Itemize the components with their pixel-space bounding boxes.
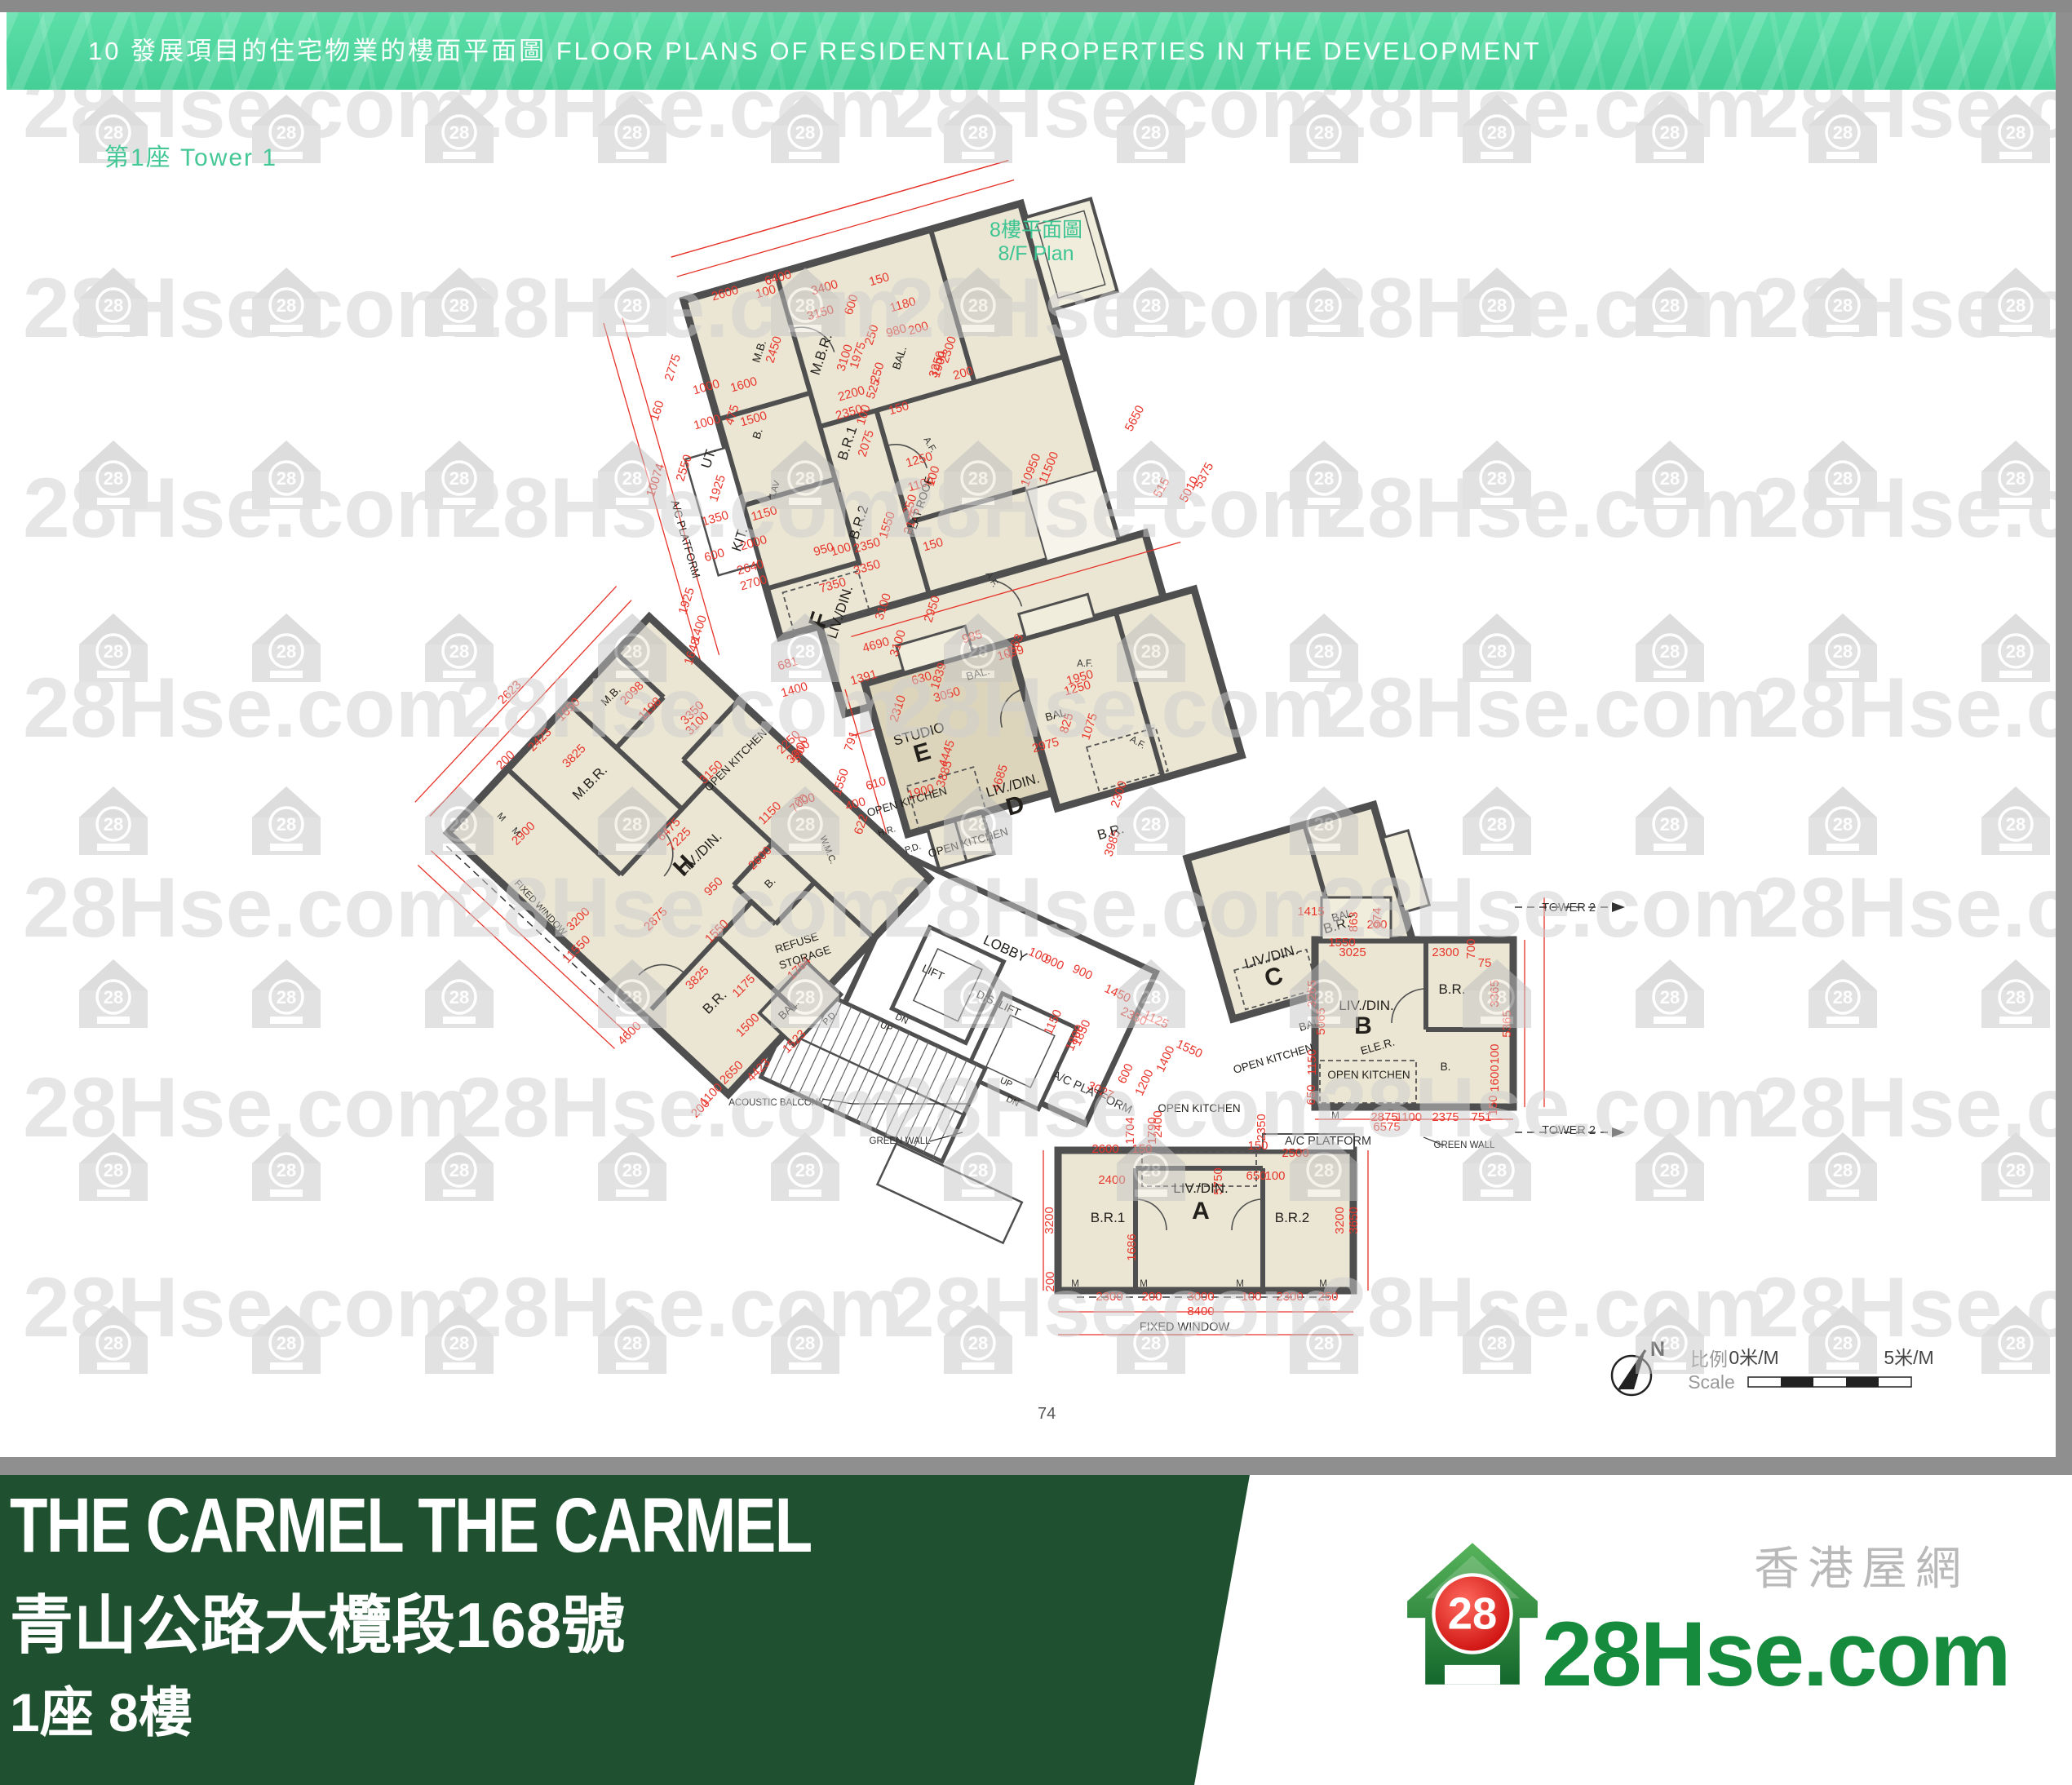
watermark-house-badge: 28 — [1660, 987, 1680, 1008]
watermark-house-badge: 28 — [1487, 1160, 1507, 1180]
dimension-label: 3650 — [1347, 1207, 1361, 1234]
watermark-house-badge: 28 — [968, 1160, 988, 1180]
watermark-house-icon: 28 — [598, 786, 666, 855]
dimension-label: 11500 — [1036, 450, 1061, 485]
dimension-label: 2400 — [1151, 1110, 1165, 1137]
watermark-house-badge: 28 — [968, 122, 988, 143]
scale-label-zh: 比例 — [1690, 1349, 1728, 1370]
watermark-house-badge: 28 — [1314, 641, 1334, 662]
watermark-house-icon: 28 — [598, 1305, 666, 1374]
watermark-house-badge: 28 — [1487, 1333, 1507, 1353]
watermark-house-icon: 28 — [1636, 1305, 1704, 1374]
watermark-house-icon: 28 — [252, 959, 321, 1028]
dimension-label: 1150 — [1305, 1049, 1319, 1075]
room-label: B.R.1 — [835, 424, 860, 462]
room-label: TOWER 2 — [1542, 901, 1596, 915]
watermark-text: 28Hse.com — [1752, 61, 2072, 156]
dimension-label: 900 — [1042, 952, 1066, 973]
watermark-house-badge: 28 — [2006, 468, 2026, 489]
room-label: BAL. — [1044, 705, 1070, 723]
watermark-house-badge: 28 — [1487, 468, 1507, 489]
scale-label-en: Scale — [1688, 1371, 1735, 1393]
watermark-text: 28Hse.com — [888, 861, 1335, 955]
dimension-label: 100 — [1488, 1043, 1502, 1064]
watermark-house-badge: 28 — [2006, 1333, 2026, 1353]
dimension-label: 200 — [1366, 918, 1387, 932]
watermark-text: 28Hse.com — [1320, 1460, 1768, 1475]
watermark-house-icon: 28 — [1981, 268, 2050, 336]
watermark-house-badge: 28 — [1660, 641, 1680, 662]
logo-text: 28Hse.com — [1542, 1601, 2009, 1707]
dimension-label: 751 — [1471, 1110, 1491, 1124]
dimension-label: 1100 — [697, 1080, 725, 1109]
watermark-house-badge: 28 — [277, 122, 296, 143]
watermark-house-icon: 28 — [1809, 268, 1877, 336]
room-label: LIV./DIN. — [1242, 941, 1299, 972]
watermark-house-icon: 28 — [1117, 95, 1185, 163]
scale-end: 5米/M — [1884, 1347, 1933, 1368]
unit-c — [1187, 798, 1445, 1019]
watermark-house-icon: 28 — [1290, 613, 1358, 682]
watermark-house-badge: 28 — [277, 987, 296, 1008]
dimension-label: 4445 — [936, 738, 957, 768]
room-label: UP — [998, 1076, 1014, 1090]
dimension-label: 2623 — [495, 678, 525, 707]
dimension-label: 3365 — [1488, 980, 1502, 1007]
room-label: D — [1003, 791, 1027, 822]
site-logo: 28 28Hse.com 香港屋網 — [1387, 1524, 2007, 1744]
watermark-house-badge: 28 — [2006, 295, 2026, 316]
dimension-label: 1550 — [1328, 936, 1355, 950]
watermark-house-badge: 28 — [622, 1333, 642, 1353]
watermark-house-badge: 28 — [1833, 641, 1853, 662]
watermark-house-icon: 28 — [771, 1305, 839, 1374]
watermark-house-icon: 28 — [944, 268, 1012, 336]
watermark-house-icon: 28 — [252, 1132, 321, 1201]
watermark-house-badge: 28 — [795, 122, 815, 143]
watermark-house-icon: 28 — [1636, 1132, 1704, 1201]
dimension-label: 1800 — [1063, 1022, 1087, 1052]
room-label: GREEN WALL — [870, 1136, 932, 1146]
watermark-house-icon: 28 — [79, 959, 148, 1028]
dimension-label: 791 — [842, 729, 861, 753]
dimension-label: 1686 — [1125, 1234, 1139, 1260]
dimension-label: 2775 — [662, 352, 683, 383]
dimension-label: 2450 — [763, 334, 784, 365]
watermark-house-icon: 28 — [252, 95, 321, 163]
watermark-house-badge: 28 — [104, 987, 123, 1008]
dimension-label: 1950 — [1065, 667, 1095, 689]
watermark-text: 28Hse.com — [455, 1061, 903, 1155]
dimension-label: 1200 — [1132, 1067, 1157, 1097]
room-label: A/C PLATFORM — [1285, 1135, 1371, 1148]
watermark-house-badge: 28 — [1141, 122, 1161, 143]
watermark-house-icon: 28 — [1809, 95, 1877, 163]
watermark-house-icon: 28 — [1290, 786, 1358, 855]
room-label: ELE.R. — [1359, 1036, 1396, 1057]
watermark-house-icon: 28 — [1809, 1132, 1877, 1201]
watermark-house-icon: 28 — [79, 268, 148, 336]
watermark-house-icon: 28 — [771, 613, 839, 682]
dimension-label: 863 — [1347, 911, 1361, 932]
watermark-text: 28Hse.com — [888, 661, 1335, 755]
room-label: LIV./DIN. — [675, 829, 725, 879]
dimension-label: 3825 — [683, 963, 712, 993]
watermark-house-icon: 28 — [1636, 441, 1704, 509]
watermark-text: 28Hse.com — [455, 1460, 903, 1475]
dimension-label: 1250 — [904, 450, 934, 471]
dimension-label: 200 — [494, 748, 518, 773]
logo-house-icon: 28 — [1403, 1532, 1542, 1695]
watermark-house-badge: 28 — [1833, 1160, 1853, 1180]
dimension-label: 2000 — [738, 533, 768, 554]
watermark-text: 28Hse.com — [1320, 61, 1768, 156]
dimension-label: 100 — [1026, 945, 1051, 966]
dimension-label: 610 — [864, 774, 888, 793]
watermark-house-icon: 28 — [1981, 95, 2050, 163]
watermark-house-badge: 28 — [277, 814, 296, 835]
room-label: LIFT — [920, 962, 946, 982]
watermark-house-badge: 28 — [277, 641, 296, 662]
dimension-label: 2250 — [774, 728, 804, 757]
room-label: A.F. — [1128, 734, 1147, 751]
watermark-house-badge: 28 — [1141, 295, 1161, 316]
room-label: FIXED WINDOW — [1140, 1321, 1230, 1334]
watermark-house-icon: 28 — [425, 441, 494, 509]
dimension-label: 622 — [852, 813, 871, 836]
watermark-house-badge: 28 — [277, 1160, 296, 1180]
dimension-label: 2550 — [673, 453, 694, 483]
room-label: B.R. — [1096, 821, 1126, 843]
room-label: OPEN KITCHEN — [927, 826, 1009, 860]
dimension-label: 3900 — [789, 734, 810, 764]
watermark-house-icon: 28 — [944, 1132, 1012, 1201]
room-label: GREEN WALL — [1434, 1141, 1496, 1150]
footer-gray-strip — [0, 1457, 2072, 1475]
watermark-house-badge: 28 — [1660, 814, 1680, 835]
core-lifts-stairs — [741, 839, 1157, 1253]
dimension-label: 1150 — [1041, 1008, 1065, 1037]
dimension-label: 681 — [776, 654, 799, 673]
dimension-label: 150 — [887, 399, 910, 418]
dimension-label: 10950 — [1018, 452, 1043, 489]
dimension-label: 2300 — [1432, 946, 1459, 959]
room-label: M — [1140, 1279, 1148, 1289]
room-label: M — [1071, 1279, 1079, 1289]
dimension-label: 630 — [910, 669, 933, 688]
watermark-house-badge: 28 — [1487, 987, 1507, 1008]
watermark-house-icon: 28 — [1117, 786, 1185, 855]
dimension-label: 7225 — [665, 825, 694, 854]
watermark-house-icon: 28 — [771, 1132, 839, 1201]
dimension-label: 150 — [1486, 1095, 1500, 1115]
watermark-house-icon: 28 — [252, 441, 321, 509]
dimension-label: 2975 — [1030, 735, 1060, 756]
watermark-text: 28Hse.com — [455, 261, 903, 356]
dimension-label: 100 — [829, 540, 852, 559]
watermark-house-icon: 28 — [79, 95, 148, 163]
watermark-house-badge: 28 — [1660, 1333, 1680, 1353]
dimension-label: 3200 — [1333, 1207, 1347, 1234]
watermark-house-badge: 28 — [795, 814, 815, 835]
watermark-text: 28Hse.com — [888, 1460, 1335, 1475]
watermark-house-icon: 28 — [1809, 441, 1877, 509]
room-label: H — [668, 850, 700, 882]
dimension-label: 1350 — [700, 508, 730, 529]
unit-b — [1315, 897, 1625, 1145]
room-label: A — [1192, 1198, 1210, 1225]
room-label: BAL. — [1298, 1015, 1324, 1033]
watermark-text: 28Hse.com — [888, 1260, 1335, 1355]
room-label: M — [495, 811, 507, 823]
watermark-text: 28Hse.com — [23, 661, 471, 755]
watermark-text: 28Hse.com — [23, 1260, 471, 1355]
dimension-label: 3000 — [1187, 1290, 1214, 1304]
watermark-house-icon: 28 — [79, 441, 148, 509]
room-label: B. — [750, 427, 765, 441]
room-label: UT. — [698, 445, 719, 470]
dimension-label: 8400 — [1187, 1304, 1214, 1318]
dimension-label: 1550 — [1174, 1037, 1204, 1061]
dimension-label: 1075 — [1078, 711, 1100, 742]
room-label: ACOUSTIC BALCONY — [728, 1098, 825, 1108]
room-label: B.R.2 — [1275, 1210, 1310, 1225]
dimension-label: 100 — [923, 464, 943, 488]
dimension-label: 525 — [864, 377, 883, 401]
dimension-label: 1704 — [1123, 1117, 1137, 1144]
dimension-label: 2200 — [836, 383, 866, 405]
watermark-house-icon: 28 — [425, 786, 494, 855]
watermark-house-icon: 28 — [79, 1132, 148, 1201]
watermark-house-badge: 28 — [449, 468, 469, 489]
dimension-label: 5010 — [1177, 474, 1202, 504]
dimension-labels-layer: 6400100340015026003150600118098020025024… — [494, 268, 1514, 1318]
dimension-label: 600 — [702, 546, 726, 565]
room-label: LIV./DIN. — [984, 770, 1041, 800]
dimension-label: 1415 — [1297, 905, 1324, 919]
dimension-label: 160 — [648, 399, 667, 423]
watermark-house-badge: 28 — [795, 641, 815, 662]
watermark-house-badge: 28 — [968, 468, 988, 489]
dimension-label: 650 — [1246, 1169, 1266, 1183]
watermark-house-badge: 28 — [449, 295, 469, 316]
watermark-house-badge: 28 — [1314, 1160, 1334, 1180]
room-label: STUDIO — [892, 720, 946, 749]
dimension-label: 3100 — [683, 709, 712, 738]
room-label: B — [1354, 1012, 1372, 1039]
watermark-text: 28Hse.com — [23, 1061, 471, 1155]
watermark-house-badge: 28 — [968, 295, 988, 316]
room-label: UP — [879, 1021, 894, 1034]
dimension-label: 2875 — [641, 905, 671, 934]
dimension-label: 2600 — [710, 283, 740, 304]
watermark-house-badge: 28 — [449, 1160, 469, 1180]
watermark-text: 28Hse.com — [1752, 1460, 2072, 1475]
watermark-text: 28Hse.com — [1320, 861, 1768, 955]
watermark-text: 28Hse.com — [1320, 1260, 1768, 1355]
watermark-house-badge: 28 — [1314, 814, 1334, 835]
watermark-house-icon: 28 — [425, 268, 494, 336]
dimension-label: 1400 — [779, 680, 809, 701]
dimension-label: 3100 — [872, 591, 893, 622]
dimension-label: 200 — [1043, 1271, 1057, 1291]
watermark-house-icon: 28 — [1290, 1132, 1358, 1201]
watermark-house-icon: 28 — [1981, 1305, 2050, 1374]
watermark-house-badge: 28 — [104, 1333, 123, 1353]
watermark-house-badge: 28 — [1833, 814, 1853, 835]
dimension-label: 2400 — [1098, 1173, 1125, 1187]
watermark-house-icon: 28 — [1117, 268, 1185, 336]
dimension-label: 250 — [862, 323, 882, 347]
room-label: M.B. — [750, 339, 768, 364]
dimension-label: 1900 — [928, 349, 950, 379]
room-label: A.F. — [983, 570, 999, 589]
dimension-label: 1400 — [688, 613, 709, 644]
watermark-house-badge: 28 — [449, 814, 469, 835]
room-label: H.R. — [877, 824, 897, 839]
watermark-house-badge: 28 — [1487, 641, 1507, 662]
dimension-label: 3100 — [887, 628, 908, 658]
dimension-label: 5365 — [1500, 1010, 1514, 1037]
dimension-label: 1925 — [706, 473, 728, 503]
dimension-label: 2875 — [1370, 1110, 1397, 1124]
dimension-label: 2300 — [937, 334, 959, 365]
dimension-label: 515 — [1151, 476, 1173, 500]
watermark-house-badge: 28 — [1833, 122, 1853, 143]
watermark-house-icon: 28 — [425, 95, 494, 163]
dimension-label: 3025 — [1339, 946, 1366, 959]
watermark-house-badge: 28 — [622, 295, 642, 316]
dimension-label: 3250 — [926, 349, 947, 379]
watermark-house-badge: 28 — [104, 1160, 123, 1180]
watermark-house-icon: 28 — [1463, 95, 1531, 163]
dimension-label: 400 — [843, 795, 867, 813]
property-info-box: THE CARMEL THE CARMEL 青山公路大欖段168號 1座 8樓 — [0, 1475, 1256, 1785]
dimension-label: 75 — [1478, 956, 1492, 970]
dimension-label: 1500 — [738, 409, 768, 430]
watermark-text: 28Hse.com — [888, 461, 1335, 556]
north-label: N — [1650, 1338, 1665, 1361]
dimension-label: 2175 — [901, 506, 922, 536]
dimension-label: 1000 — [691, 377, 721, 398]
watermark-house-badge: 28 — [1314, 468, 1334, 489]
watermark-text: 28Hse.com — [455, 61, 903, 156]
room-label: LIV./DIN. — [824, 583, 856, 640]
dimension-label: 250 — [901, 493, 920, 516]
watermark-house-icon: 28 — [1463, 1132, 1531, 1201]
dimension-label: 1550 — [702, 917, 732, 946]
north-arrow: N — [1612, 1338, 1665, 1395]
room-label: B. — [1441, 1061, 1451, 1073]
dimension-label: 11550 — [560, 932, 593, 966]
dimension-label: 4690 — [861, 635, 891, 656]
watermark-house-badge: 28 — [622, 641, 642, 662]
watermark-house-icon: 28 — [771, 786, 839, 855]
watermark-house-badge: 28 — [968, 987, 988, 1008]
watermark-house-icon: 28 — [1290, 95, 1358, 163]
dimension-label: 6400 — [763, 268, 793, 289]
watermark-house-badge: 28 — [2006, 1160, 2026, 1180]
room-label: A.F. — [921, 436, 937, 454]
dimension-label: 1925 — [675, 586, 697, 616]
upper-wing — [671, 161, 1118, 638]
dimension-label: 6475 — [654, 815, 684, 844]
room-label: M.B. — [599, 684, 623, 708]
dimension-label: 1150 — [755, 799, 784, 827]
watermark-house-icon: 28 — [944, 613, 1012, 682]
dimension-label: 2350 — [1118, 1004, 1149, 1029]
room-label: OPEN KITCHEN — [1327, 1069, 1410, 1081]
room-label: REFUSE — [773, 930, 820, 955]
room-label: M — [1236, 1279, 1244, 1289]
watermark-house-icon: 28 — [1636, 786, 1704, 855]
watermark-house-icon: 28 — [1463, 786, 1531, 855]
watermark-house-icon: 28 — [1981, 441, 2050, 509]
watermark-house-badge: 28 — [1314, 295, 1334, 316]
watermark-house-badge: 28 — [1314, 1333, 1334, 1353]
dimension-label: 10074 — [644, 462, 667, 498]
dimension-label: 1648 — [681, 636, 702, 667]
watermark-house-icon: 28 — [1117, 959, 1185, 1028]
room-label: FIXED WINDOW — [512, 879, 569, 937]
room-label: P.D. — [904, 842, 923, 856]
dimension-label: 6575 — [1373, 1120, 1400, 1134]
watermark-text: 28Hse.com — [455, 661, 903, 755]
room-label: LOBBY — [981, 932, 1029, 965]
watermark-house-badge: 28 — [1314, 987, 1334, 1008]
dimension-label: 100 — [1264, 1169, 1285, 1183]
dimension-label: 5375 — [1192, 460, 1217, 490]
dimension-label: 2900 — [509, 819, 538, 848]
dimension-label: 1363 — [1002, 631, 1027, 662]
watermark-house-icon: 28 — [1463, 268, 1531, 336]
room-label: B.R.1 — [1091, 1210, 1126, 1225]
dimension-label: 250 — [1317, 1290, 1338, 1304]
room-label: KIT. — [728, 525, 750, 553]
dimension-label: 3027 — [1085, 1079, 1115, 1103]
plan-floor-title: 8樓平面圖 8/F Plan — [938, 219, 1134, 266]
dimension-label: 950 — [702, 875, 726, 899]
watermark-house-icon: 28 — [1636, 959, 1704, 1028]
dimension-label: 1100 — [1396, 1110, 1422, 1124]
watermark-house-badge: 28 — [277, 1333, 296, 1353]
dimension-label: 2300 — [1096, 1290, 1122, 1304]
room-label: LAV — [768, 479, 782, 498]
watermark-house-icon: 28 — [1636, 95, 1704, 163]
dimension-label: 1180 — [888, 295, 918, 315]
dimension-label: 600 — [842, 293, 861, 317]
dimension-label: 2350 — [834, 402, 864, 423]
watermark-text: 28Hse.com — [23, 861, 471, 955]
dimension-label: 1125 — [1141, 1008, 1171, 1031]
watermark-house-badge: 28 — [1833, 295, 1853, 316]
scale-start: 0米/M — [1729, 1347, 1778, 1368]
watermark-house-icon: 28 — [1117, 1132, 1185, 1201]
dimension-label: 3265 — [1305, 980, 1319, 1007]
watermark-house-icon: 28 — [252, 613, 321, 682]
footer: THE CARMEL THE CARMEL 青山公路大欖段168號 1座 8樓 — [0, 1475, 2072, 1785]
dimension-label: 4600 — [615, 1019, 644, 1048]
dimension-label: 200 — [688, 1096, 713, 1121]
dimension-label: 3985 — [1101, 828, 1122, 858]
dimension-label: 2600 — [746, 844, 775, 873]
watermark-house-badge: 28 — [104, 468, 123, 489]
dimension-label: 3885 — [933, 759, 954, 789]
dimension-label: 2300 — [1108, 779, 1129, 809]
room-label: M.B.R. — [569, 762, 610, 803]
room-label: F — [804, 609, 834, 631]
dimension-label: 974 — [1370, 907, 1384, 928]
